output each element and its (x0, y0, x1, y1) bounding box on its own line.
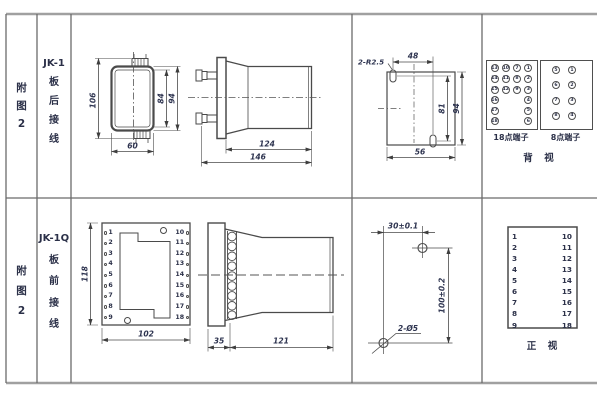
dim-48: 48 (408, 52, 419, 61)
table-number-7: 7 (512, 297, 534, 308)
terminal-number-10: 10 (175, 230, 184, 236)
terminal-row: 5 (104, 270, 120, 281)
terminal-circle-8: 8 (513, 75, 521, 83)
terminal-dot (186, 242, 189, 245)
table-number-17: 17 (549, 308, 572, 319)
dim-94-rear: 94 (168, 93, 177, 104)
terminal-circle-11: 11 (502, 75, 510, 83)
dim-60: 60 (127, 142, 138, 151)
label-18pt: 18点端子 (483, 132, 539, 143)
terminal-circle-10: 10 (502, 64, 510, 72)
front-table-col-right: 101112131415161718 (549, 231, 572, 331)
terminal-circle-9: 9 (513, 86, 521, 94)
terminal-screw-stack (228, 232, 237, 319)
terminal-row: 8 (104, 302, 120, 313)
terminal-dot (186, 252, 189, 255)
dim-94-cutout: 94 (452, 103, 461, 114)
figure-sheet: 106 84 94 60 124 146 (0, 0, 600, 400)
terminal-dot (104, 263, 107, 266)
terminal-row: 13 (168, 259, 189, 270)
terminal-dot (104, 316, 107, 319)
terminal-number-17: 17 (175, 304, 184, 310)
table-number-4: 4 (512, 264, 534, 275)
terminal-number-6: 6 (108, 283, 112, 289)
table-number-6: 6 (512, 286, 534, 297)
terminal-circle-12: 12 (502, 86, 510, 94)
terminal-row: 17 (168, 302, 189, 313)
terminal-row: 16 (168, 291, 189, 302)
table-number-18: 18 (549, 320, 572, 331)
terminal-row: 10 (168, 228, 189, 239)
terminal-number-18: 18 (175, 315, 184, 321)
table-number-10: 10 (549, 231, 572, 242)
terminal-dot (186, 305, 189, 308)
terminal-number-16: 16 (175, 293, 184, 299)
terminal-box-18pt: 131415161718101112789123456 (486, 60, 538, 131)
dim-106: 106 (89, 92, 98, 109)
terminal-number-4: 4 (108, 261, 112, 267)
table-number-12: 12 (549, 253, 572, 264)
terminal-box-8pt: 56781234 (540, 60, 593, 131)
terminal-circle-3: 3 (524, 86, 532, 94)
table-number-2: 2 (512, 242, 534, 253)
terminal-circle-3: 3 (568, 97, 576, 105)
terminal-circle-13: 13 (491, 64, 499, 72)
terminal-number-2: 2 (108, 240, 112, 246)
terminal-circle-18: 18 (491, 117, 499, 125)
terminal-circle-5: 5 (552, 66, 560, 74)
terminal-row: 7 (104, 291, 120, 302)
terminal-row: 6 (104, 281, 120, 292)
terminal-number-7: 7 (108, 293, 112, 299)
dim-146: 146 (250, 153, 267, 162)
terminal-circle-6: 6 (552, 81, 560, 89)
terminal-circle-2: 2 (524, 75, 532, 83)
terminal-number-8: 8 (108, 304, 112, 310)
terminal-number-9: 9 (108, 315, 112, 321)
row2-model-label: JK-1Q 板 前 接 线 (38, 228, 70, 336)
terminal-dot (104, 242, 107, 245)
terminal-row: 9 (104, 312, 120, 323)
terminal-circle-4: 4 (568, 112, 576, 120)
rear-side-drawing (188, 58, 322, 167)
dim-84: 84 (157, 93, 166, 104)
terminal-row: 15 (168, 281, 189, 292)
table-number-14: 14 (549, 275, 572, 286)
terminal-dot (104, 231, 107, 234)
label-2-r2.5: 2-R2.5 (358, 58, 384, 67)
terminal-dot (186, 231, 189, 234)
table-number-13: 13 (549, 264, 572, 275)
label-front-view: 正 视 (505, 338, 580, 352)
label-2-d5: 2-Ø5 (398, 324, 418, 333)
table-number-9: 9 (512, 320, 534, 331)
table-number-5: 5 (512, 275, 534, 286)
terminal-dot (186, 274, 189, 277)
terminal-row: 14 (168, 270, 189, 281)
terminal-dot (186, 263, 189, 266)
terminal-circle-16: 16 (491, 96, 499, 104)
terminal-circle-7: 7 (552, 97, 560, 105)
front-table-col-left: 123456789 (512, 231, 534, 331)
dim-56: 56 (415, 148, 426, 157)
dim-121: 121 (273, 337, 289, 346)
terminal-number-14: 14 (175, 272, 184, 278)
terminal-circle-14: 14 (491, 75, 499, 83)
terminal-dot (186, 316, 189, 319)
dim-35: 35 (214, 337, 225, 346)
table-number-11: 11 (549, 242, 572, 253)
terminal-row: 3 (104, 249, 120, 260)
table-number-15: 15 (549, 286, 572, 297)
table-number-1: 1 (512, 231, 534, 242)
terminal-row: 4 (104, 259, 120, 270)
terminal-row: 12 (168, 249, 189, 260)
dim-30: 30±0.1 (388, 222, 418, 231)
terminal-number-15: 15 (175, 283, 184, 289)
dim-118: 118 (81, 266, 90, 282)
front-side-drawing (198, 223, 344, 352)
terminal-circle-6: 6 (524, 117, 532, 125)
terminal-number-12: 12 (175, 251, 184, 257)
terminal-circle-4: 4 (524, 96, 532, 104)
table-number-8: 8 (512, 308, 534, 319)
terminal-circle-7: 7 (513, 64, 521, 72)
terminal-circle-17: 17 (491, 107, 499, 115)
terminal-row: 18 (168, 312, 189, 323)
terminal-dot (186, 295, 189, 298)
label-rear-view: 背 视 (495, 150, 583, 164)
front-view-terminals-left: 123456789 (104, 228, 120, 323)
terminal-dot (104, 274, 107, 277)
terminal-dot (104, 305, 107, 308)
terminal-dot (104, 284, 107, 287)
terminal-circle-5: 5 (524, 107, 532, 115)
terminal-number-3: 3 (108, 251, 112, 257)
terminal-circle-8: 8 (552, 112, 560, 120)
terminal-number-5: 5 (108, 272, 112, 278)
terminal-number-13: 13 (175, 261, 184, 267)
row1-model-label: JK-1 板 后 接 线 (38, 54, 70, 149)
row2-fig-label: 附 图 2 (11, 261, 32, 321)
dim-81: 81 (438, 103, 447, 114)
table-number-3: 3 (512, 253, 534, 264)
terminal-circle-1: 1 (524, 64, 532, 72)
terminal-number-1: 1 (108, 230, 112, 236)
dim-100: 100±0.2 (438, 278, 447, 314)
terminal-row: 2 (104, 238, 120, 249)
terminal-dot (104, 295, 107, 298)
terminal-circle-2: 2 (568, 81, 576, 89)
dim-124: 124 (259, 140, 275, 149)
front-view-terminals-right: 101112131415161718 (168, 228, 189, 323)
terminal-row: 11 (168, 238, 189, 249)
terminal-dot (104, 252, 107, 255)
dim-102: 102 (138, 330, 154, 339)
terminal-dot (186, 284, 189, 287)
terminal-row: 1 (104, 228, 120, 239)
terminal-circle-1: 1 (568, 66, 576, 74)
label-8pt: 8点端子 (540, 132, 591, 143)
table-number-16: 16 (549, 297, 572, 308)
terminal-circle-15: 15 (491, 86, 499, 94)
terminal-number-11: 11 (175, 240, 184, 246)
row1-fig-label: 附 图 2 (11, 79, 32, 133)
